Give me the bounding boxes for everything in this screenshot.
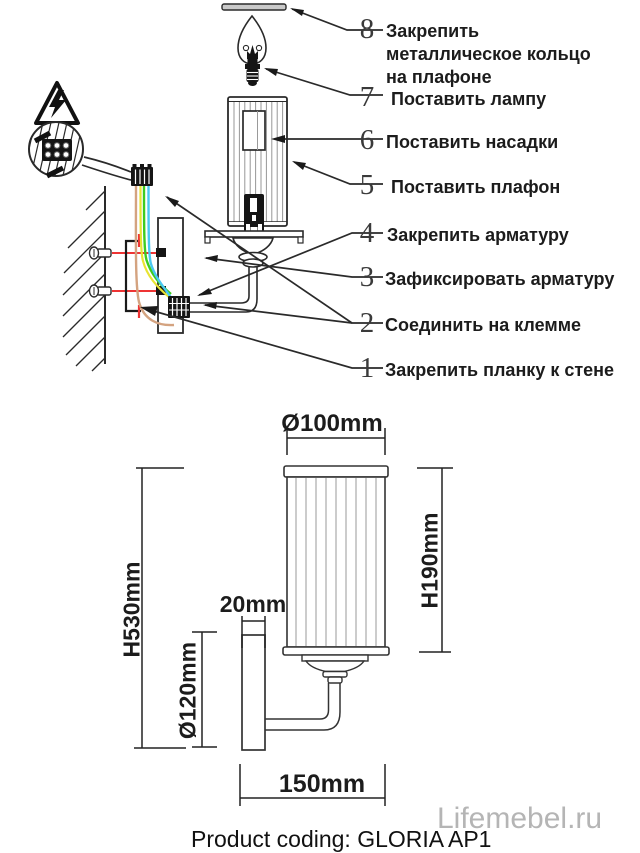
- electric-warning-icon: [36, 83, 78, 123]
- step-number: 7: [352, 83, 382, 112]
- shade-nozzle-part: [243, 111, 265, 150]
- step-number: 1: [352, 354, 382, 383]
- product-coding: Product coding: GLORIA AP1: [191, 826, 491, 853]
- step-label: Соединить на клемме: [385, 314, 581, 337]
- screw-hole-top: [156, 248, 166, 257]
- step-label: Зафиксировать арматуру: [385, 268, 614, 291]
- dim-arm-projection-label: 150mm: [252, 770, 392, 799]
- step-label: Поставить плафон: [391, 176, 560, 199]
- mounting-screw-bottom: [90, 285, 112, 297]
- step-number: 4: [352, 219, 382, 248]
- step-number: 2: [352, 309, 382, 338]
- assembly-diagram: [22, 4, 383, 371]
- dim-shade: [283, 466, 389, 655]
- arm-holder-part: [184, 238, 273, 312]
- wall-hatch: [63, 186, 105, 371]
- step-label: Закрепить металлическое кольцо на плафон…: [386, 20, 604, 89]
- dim-total-height-label: H530mm: [119, 550, 146, 670]
- terminal-block-lower: [168, 296, 190, 318]
- dim-shade-diameter-label: Ø100mm: [272, 410, 392, 438]
- step-number: 5: [352, 171, 382, 200]
- step-label: Закрепить арматуру: [387, 224, 569, 247]
- lamp-socket-part: [244, 194, 264, 232]
- metal-ring-part: [222, 4, 286, 10]
- step-label: Поставить насадки: [386, 131, 558, 154]
- dim-backplate-diameter-label: Ø120mm: [175, 631, 202, 751]
- step-number: 8: [352, 15, 382, 44]
- supply-cable: [82, 157, 131, 180]
- step-label: Поставить лампу: [391, 88, 546, 111]
- terminal-block-upper: [131, 164, 153, 186]
- dim-shade-height-label: H190mm: [417, 501, 444, 621]
- candle-bulb-part: [238, 16, 266, 86]
- step-number: 6: [352, 126, 382, 155]
- terminal-detail-magnifier: [22, 118, 84, 180]
- step-label: Закрепить планку к стене: [385, 359, 614, 382]
- dim-bracket-depth-label: 20mm: [213, 591, 293, 618]
- dim-holder-arm: [265, 655, 368, 730]
- instruction-sheet: 8 Закрепить металлическое кольцо на плаф…: [0, 0, 640, 853]
- step-number: 3: [352, 263, 382, 292]
- mounting-screw-top: [90, 247, 112, 259]
- alignment-bracket: [126, 234, 141, 318]
- dim-backplate: [242, 635, 265, 750]
